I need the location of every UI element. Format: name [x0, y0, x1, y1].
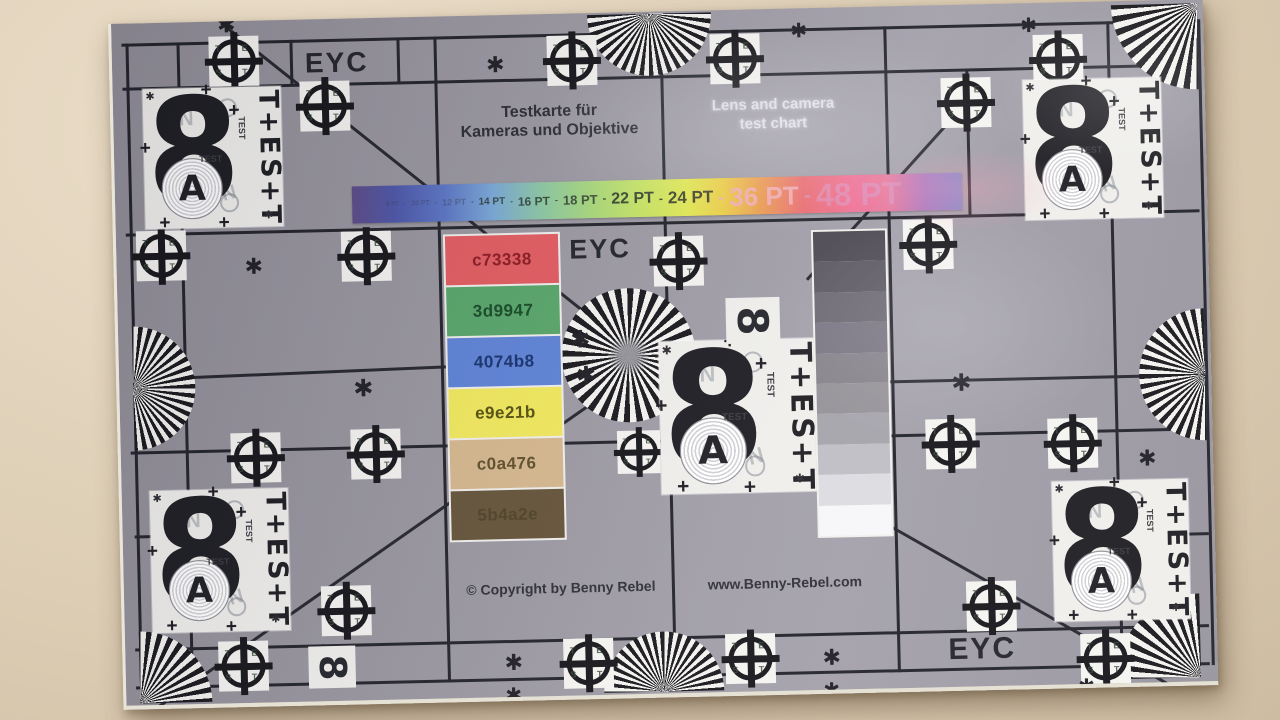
eyc-label-bottom-right: EYC: [948, 632, 1016, 668]
plus-mark: +: [744, 477, 757, 498]
crosshair-letter: T: [974, 108, 980, 118]
plus-mark: +: [655, 396, 668, 417]
vertical-test-column: T+ES+T: [264, 490, 290, 626]
small-test-label: TEST: [764, 372, 776, 397]
pt-label: 12 PT: [442, 198, 466, 208]
color-patch: 5b4a2e: [451, 489, 565, 541]
crosshair-letter: E: [936, 226, 942, 236]
vertical-test-letter: S: [1166, 550, 1187, 570]
crosshair-letter: E: [383, 435, 389, 445]
crosshair-letter: T: [743, 64, 749, 74]
crosshair-letter: T: [1039, 41, 1045, 51]
crosshair-letter: T: [264, 463, 270, 473]
crosshair-letter: E: [645, 436, 650, 445]
crosshair-letter: E: [251, 647, 257, 657]
vertical-test-letter: E: [259, 135, 280, 154]
plus-mark: +: [166, 617, 178, 636]
title-english: Lens and camera test chart: [665, 92, 882, 135]
crosshair-letter: S: [225, 672, 231, 682]
pt-separator: -: [510, 197, 513, 205]
copyright-text: © Copyright by Benny Rebel: [454, 577, 668, 598]
asterisk-mark: ✱: [822, 646, 841, 671]
crosshair-letter: T: [252, 672, 258, 682]
crosshair-bar-horizontal: [317, 607, 375, 615]
crosshair-bar-horizontal: [227, 454, 285, 462]
circled-a-letter: A: [698, 428, 729, 474]
vertical-test-letter: +: [1138, 101, 1160, 124]
vertical-test-letter: E: [266, 537, 287, 556]
crosshair-letter: E: [958, 425, 964, 435]
grayscale-step: [814, 291, 887, 323]
crosshair-bar-horizontal: [899, 240, 957, 248]
tiny-star-mark: ✱: [264, 208, 274, 221]
asterisk-mark: ✱: [353, 374, 374, 402]
vertical-test-letter: E: [789, 392, 813, 413]
grayscale-step: [813, 230, 886, 262]
vertical-test-column: T+ES+T: [787, 340, 815, 490]
crosshair-letter: T: [347, 238, 353, 248]
crosshair-bar-horizontal: [922, 440, 980, 448]
crosshair-letter: E: [999, 587, 1005, 597]
grayscale-step: [819, 504, 892, 536]
crosshair-letter: S: [732, 665, 738, 675]
crosshair-letter: T: [716, 41, 722, 51]
grayscale-wedge: [811, 228, 894, 538]
crosshair-letter: T: [215, 43, 221, 53]
circled-a-letter: A: [1087, 561, 1115, 602]
crosshair-bar-horizontal: [962, 602, 1020, 610]
plus-mark: +: [1080, 72, 1092, 91]
tiny-star-mark: ✱: [1025, 81, 1035, 94]
vertical-test-letter: S: [1139, 149, 1160, 169]
vertical-test-letter: +: [791, 441, 815, 466]
asterisk-mark: ✱: [823, 678, 840, 702]
vertical-test-letter: S: [259, 158, 280, 178]
circled-a-letter: A: [1058, 159, 1086, 200]
crosshair-target: TEST: [903, 219, 954, 270]
vertical-test-letter: +: [265, 512, 287, 535]
asterisk-mark: ✱: [1020, 13, 1037, 37]
crosshair-letter: T: [909, 226, 915, 236]
color-patch-label: e9e21b: [475, 402, 536, 423]
crosshair-target: TEST: [299, 81, 350, 132]
vertical-test-letter: E: [1166, 528, 1187, 547]
small-test-label: TEST: [722, 412, 747, 424]
crosshair-letter: T: [660, 243, 666, 253]
crosshair-letter: T: [947, 84, 953, 94]
asterisk-mark: ✱: [217, 13, 236, 38]
circled-a-letter: A: [178, 168, 206, 209]
small-test-label: TEST: [199, 153, 222, 164]
crosshair-letter: T: [932, 426, 938, 436]
eyc-label-top-left: EYC: [305, 46, 369, 79]
crosshair-letter: T: [237, 440, 243, 450]
asterisk-mark: ✱: [504, 651, 523, 676]
crosshair-bar-horizontal: [937, 98, 995, 106]
plus-mark: +: [1136, 494, 1148, 513]
crosshair-bar-horizontal: [215, 662, 273, 670]
crosshair-letter: T: [169, 262, 175, 272]
color-patch: e9e21b: [448, 387, 562, 439]
plus-mark: +: [200, 81, 212, 100]
pt-label: 24 PT: [668, 188, 714, 206]
crosshair-letter: S: [348, 262, 354, 272]
vertical-test-column: T+ES+T: [257, 88, 283, 224]
crosshair-target: TEST: [341, 231, 392, 282]
asterisk-mark: ✱: [790, 18, 807, 42]
plus-mark: +: [1049, 532, 1061, 551]
test-chart-card: TEST TEST TEST TEST TEST TEST TEST TEST …: [108, 0, 1218, 710]
crosshair-letter: E: [596, 644, 602, 654]
vertical-test-letter: T: [265, 491, 286, 510]
crosshair-bar-horizontal: [337, 252, 395, 260]
crosshair-letter: E: [1080, 424, 1086, 434]
crosshair-bar-horizontal: [296, 102, 354, 110]
website-text: www.Benny-Rebel.com: [680, 572, 890, 593]
test8a-card-bottom-right: NN8AT+ES+TTESTTEST+++++✱✱: [1052, 479, 1191, 622]
crosshair-letter: E: [1113, 640, 1119, 650]
tiny-star-mark: ✱: [271, 612, 281, 625]
grayscale-step: [816, 382, 889, 414]
crosshair-target: TEST: [966, 581, 1017, 632]
pt-label: 48 PT: [816, 177, 902, 211]
crosshair-bar-horizontal: [205, 57, 263, 65]
color-patch-label: c73338: [472, 249, 532, 270]
crosshair-target: TEST: [653, 236, 704, 287]
crosshair-letter: T: [225, 648, 231, 658]
pt-label: 36 PT: [729, 182, 799, 210]
grid-line-vertical: [289, 40, 293, 86]
plus-mark: +: [1127, 606, 1139, 625]
tiny-star-mark: ✱: [661, 343, 671, 357]
plus-mark: +: [140, 139, 152, 158]
plus-mark: +: [218, 213, 230, 232]
crosshair-letter: T: [333, 112, 339, 122]
crosshair-letter: T: [759, 664, 765, 674]
small-test-label: TEST: [206, 556, 229, 567]
color-patch: 3d9947: [446, 285, 560, 337]
crosshair-letter: T: [580, 66, 586, 76]
pt-label: 18 PT: [563, 193, 598, 207]
mini-8-digit: 8: [310, 654, 354, 681]
crosshair-bar-horizontal: [560, 659, 618, 667]
grayscale-step: [814, 261, 887, 293]
crosshair-letter: S: [660, 267, 666, 277]
crosshair-letter: E: [332, 87, 338, 97]
crosshair-letter: T: [597, 669, 603, 679]
plus-mark: +: [207, 483, 219, 502]
crosshair-letter: S: [554, 67, 560, 77]
asterisk-mark: ✱: [576, 361, 597, 389]
crosshair-target: TEST: [563, 638, 614, 689]
vertical-test-letter: +: [260, 179, 282, 202]
crosshair-letter: T: [936, 250, 942, 260]
small-test-label: TEST: [1107, 546, 1130, 557]
siemens-fan-top: [587, 12, 712, 77]
crosshair-letter: T: [327, 593, 333, 603]
crosshair-letter: T: [732, 640, 738, 650]
crosshair-target: TEST: [940, 77, 991, 128]
crosshair-letter: S: [1054, 450, 1060, 460]
grayscale-step: [816, 352, 889, 384]
asterisk-mark: ✱: [570, 325, 591, 353]
plus-mark: +: [228, 101, 240, 120]
vertical-test-letter: T: [258, 89, 279, 108]
crosshair-bar-horizontal: [721, 654, 779, 662]
asterisk-mark: ✱: [244, 255, 263, 280]
plus-mark: +: [1020, 130, 1032, 149]
pt-separator: -: [404, 200, 407, 207]
crosshair-letter: S: [948, 109, 954, 119]
tiny-star-mark: ✱: [145, 90, 155, 103]
pt-label: 16 PT: [518, 195, 550, 208]
eyc-label-center: EYC: [569, 233, 631, 265]
tiny-star-mark: ✱: [152, 492, 162, 505]
crosshair-bar-horizontal: [649, 257, 707, 265]
plus-mark: +: [1039, 204, 1051, 223]
asterisk-mark: ✱: [1138, 446, 1157, 471]
grayscale-step: [817, 413, 890, 445]
mini-8-sticker: 8: [308, 646, 356, 689]
pt-separator: -: [718, 188, 724, 206]
vertical-test-letter: +: [258, 110, 280, 133]
crosshair-letter: S: [623, 457, 628, 466]
crosshair-bar-horizontal: [1044, 439, 1102, 447]
crosshair-target: TEST: [709, 33, 760, 84]
crosshair-letter: T: [687, 267, 693, 277]
crosshair-letter: T: [306, 88, 312, 98]
crosshair-letter: S: [932, 450, 938, 460]
pt-label: 10 PT: [411, 200, 430, 207]
crosshair-letter: E: [374, 237, 380, 247]
crosshair-letter: T: [374, 262, 380, 272]
test8a-card-bottom-left: NN8AT+ES+TTESTTEST+++++✱✱: [150, 488, 291, 633]
photo-of-test-chart: TEST TEST TEST TEST TEST TEST TEST TEST …: [0, 0, 1280, 720]
crosshair-letter: E: [1066, 41, 1072, 51]
small-test-label: TEST: [1079, 144, 1102, 155]
pt-separator: -: [435, 200, 438, 207]
crosshair-letter: T: [1000, 612, 1006, 622]
vertical-test-letter: +: [789, 365, 813, 390]
tiny-star-mark: ✱: [1144, 199, 1154, 212]
crosshair-letter: S: [357, 460, 363, 470]
grid-line-vertical: [396, 39, 400, 83]
plus-mark: +: [147, 542, 159, 561]
crosshair-letter: S: [973, 612, 979, 622]
vertical-test-letter: S: [790, 417, 814, 439]
crosshair-letter: T: [142, 238, 148, 248]
grayscale-step: [815, 322, 888, 354]
crosshair-letter: E: [743, 40, 749, 50]
color-patch-label: 5b4a2e: [477, 504, 538, 525]
test8a-card-center: NN8AT+ES+TTESTTEST+++++✱✱: [658, 338, 816, 494]
crosshair-letter: T: [357, 436, 363, 446]
color-patch-label: c0a476: [476, 453, 536, 474]
crosshair-letter: T: [973, 588, 979, 598]
plus-mark: +: [226, 617, 238, 636]
siemens-fan-right: [1138, 308, 1207, 441]
crosshair-target: TEST: [617, 430, 661, 474]
crosshair-letter: T: [570, 645, 576, 655]
vertical-test-letter: +: [1165, 503, 1187, 526]
vertical-test-letter: E: [1139, 126, 1160, 145]
vertical-test-letter: T: [1138, 80, 1159, 99]
crosshair-bar-horizontal: [543, 56, 601, 64]
pt-separator: -: [803, 184, 811, 206]
crosshair-letter: T: [623, 436, 628, 445]
color-patch: 4074b8: [447, 336, 561, 388]
circled-a-letter: A: [185, 570, 213, 611]
tiny-star-mark: ✱: [795, 471, 805, 485]
crosshair-target: TEST: [218, 641, 269, 692]
plus-mark: +: [755, 354, 768, 375]
crosshair-target: TEST: [546, 35, 597, 86]
crosshair-letter: S: [143, 262, 149, 272]
crosshair-bar-horizontal: [614, 448, 664, 455]
crosshair-letter: E: [354, 592, 360, 602]
crosshair-letter: T: [355, 616, 361, 626]
pt-separator: -: [659, 192, 663, 204]
crosshair-target: TEST: [725, 633, 776, 684]
pt-separator: -: [602, 194, 606, 205]
crosshair-letter: T: [1114, 664, 1120, 674]
crosshair-letter: T: [242, 67, 248, 77]
vertical-test-letter: +: [1167, 572, 1189, 595]
crosshair-letter: S: [717, 65, 723, 75]
crosshair-target: TEST: [925, 418, 976, 469]
tiny-star-mark: ✱: [1054, 483, 1064, 496]
crosshair-letter: E: [241, 42, 247, 52]
color-patch-label: 4074b8: [474, 351, 535, 372]
crosshair-bar-horizontal: [1077, 654, 1135, 662]
test8a-card-top-right: NN8AT+ES+TTESTTEST+++++✱✱: [1023, 77, 1164, 220]
plus-mark: +: [235, 503, 247, 522]
mini-8-digit: 8: [728, 305, 778, 335]
color-patch: c73338: [445, 234, 559, 286]
crosshair-target: TEST: [350, 428, 401, 479]
crosshair-letter: S: [570, 670, 576, 680]
crosshair-letter: T: [384, 460, 390, 470]
crosshair-letter: E: [169, 237, 175, 247]
crosshair-letter: T: [553, 42, 559, 52]
pt-separator: -: [471, 199, 474, 206]
plus-mark: +: [159, 213, 171, 232]
asterisk-mark: ✱: [951, 369, 972, 397]
crosshair-letter: E: [263, 439, 269, 449]
crosshair-letter: S: [307, 112, 313, 122]
plus-mark: +: [1109, 473, 1121, 492]
title-german-line2: Kameras und Objektive: [439, 119, 659, 143]
color-patch-stack: c733383d99474074b8e9e21bc0a4765b4a2e: [443, 232, 567, 543]
crosshair-letter: E: [686, 242, 692, 252]
grayscale-step: [818, 474, 891, 506]
vertical-test-letter: +: [267, 581, 289, 604]
asterisk-mark: ✱: [486, 53, 505, 78]
crosshair-letter: T: [1054, 425, 1060, 435]
tiny-star-mark: ✱: [1171, 601, 1181, 614]
color-patch: c0a476: [450, 438, 564, 490]
crosshair-bar-horizontal: [706, 55, 764, 63]
crosshair-letter: E: [758, 640, 764, 650]
asterisk-mark: ✱: [505, 683, 522, 707]
crosshair-letter: T: [959, 450, 965, 460]
pt-label: 8 PT: [386, 201, 399, 207]
pt-label: 14 PT: [478, 197, 505, 208]
grayscale-step: [818, 443, 891, 475]
siemens-fan-corner-bl: [139, 630, 213, 704]
crosshair-letter: S: [910, 251, 916, 261]
crosshair-target: TEST: [321, 585, 372, 636]
title-english-line2: test chart: [665, 111, 881, 135]
vertical-test-letter: +: [1140, 170, 1162, 193]
crosshair-letter: T: [1081, 449, 1087, 459]
plus-mark: +: [1108, 92, 1120, 111]
pt-label: 22 PT: [611, 190, 654, 207]
plus-mark: +: [1068, 606, 1080, 625]
color-patch-label: 3d9947: [473, 300, 534, 321]
crosshair-bar-horizontal: [347, 450, 405, 458]
vertical-test-letter: T: [788, 342, 812, 363]
crosshair-letter: E: [580, 42, 586, 52]
vertical-test-letter: T: [1165, 482, 1186, 501]
crosshair-letter: T: [646, 457, 651, 466]
title-german: Testkarte für Kameras und Objektive: [439, 100, 660, 143]
vertical-test-column: T+ES+T: [1164, 481, 1190, 617]
plus-mark: +: [677, 477, 690, 498]
test8a-card-top-left: NN8AT+ES+TTESTTEST+++++✱✱: [142, 86, 283, 229]
crosshair-letter: E: [974, 84, 980, 94]
mini-8-sticker: 8: [725, 297, 780, 344]
crosshair-bar-horizontal: [132, 252, 190, 260]
crosshair-letter: S: [328, 617, 334, 627]
plus-mark: +: [1098, 204, 1110, 223]
vertical-test-column: T+ES+T: [1137, 79, 1163, 215]
vertical-test-letter: S: [266, 560, 287, 580]
crosshair-letter: T: [1087, 640, 1093, 650]
pt-separator: -: [555, 196, 558, 205]
asterisk-mark: ✱: [1078, 674, 1095, 698]
